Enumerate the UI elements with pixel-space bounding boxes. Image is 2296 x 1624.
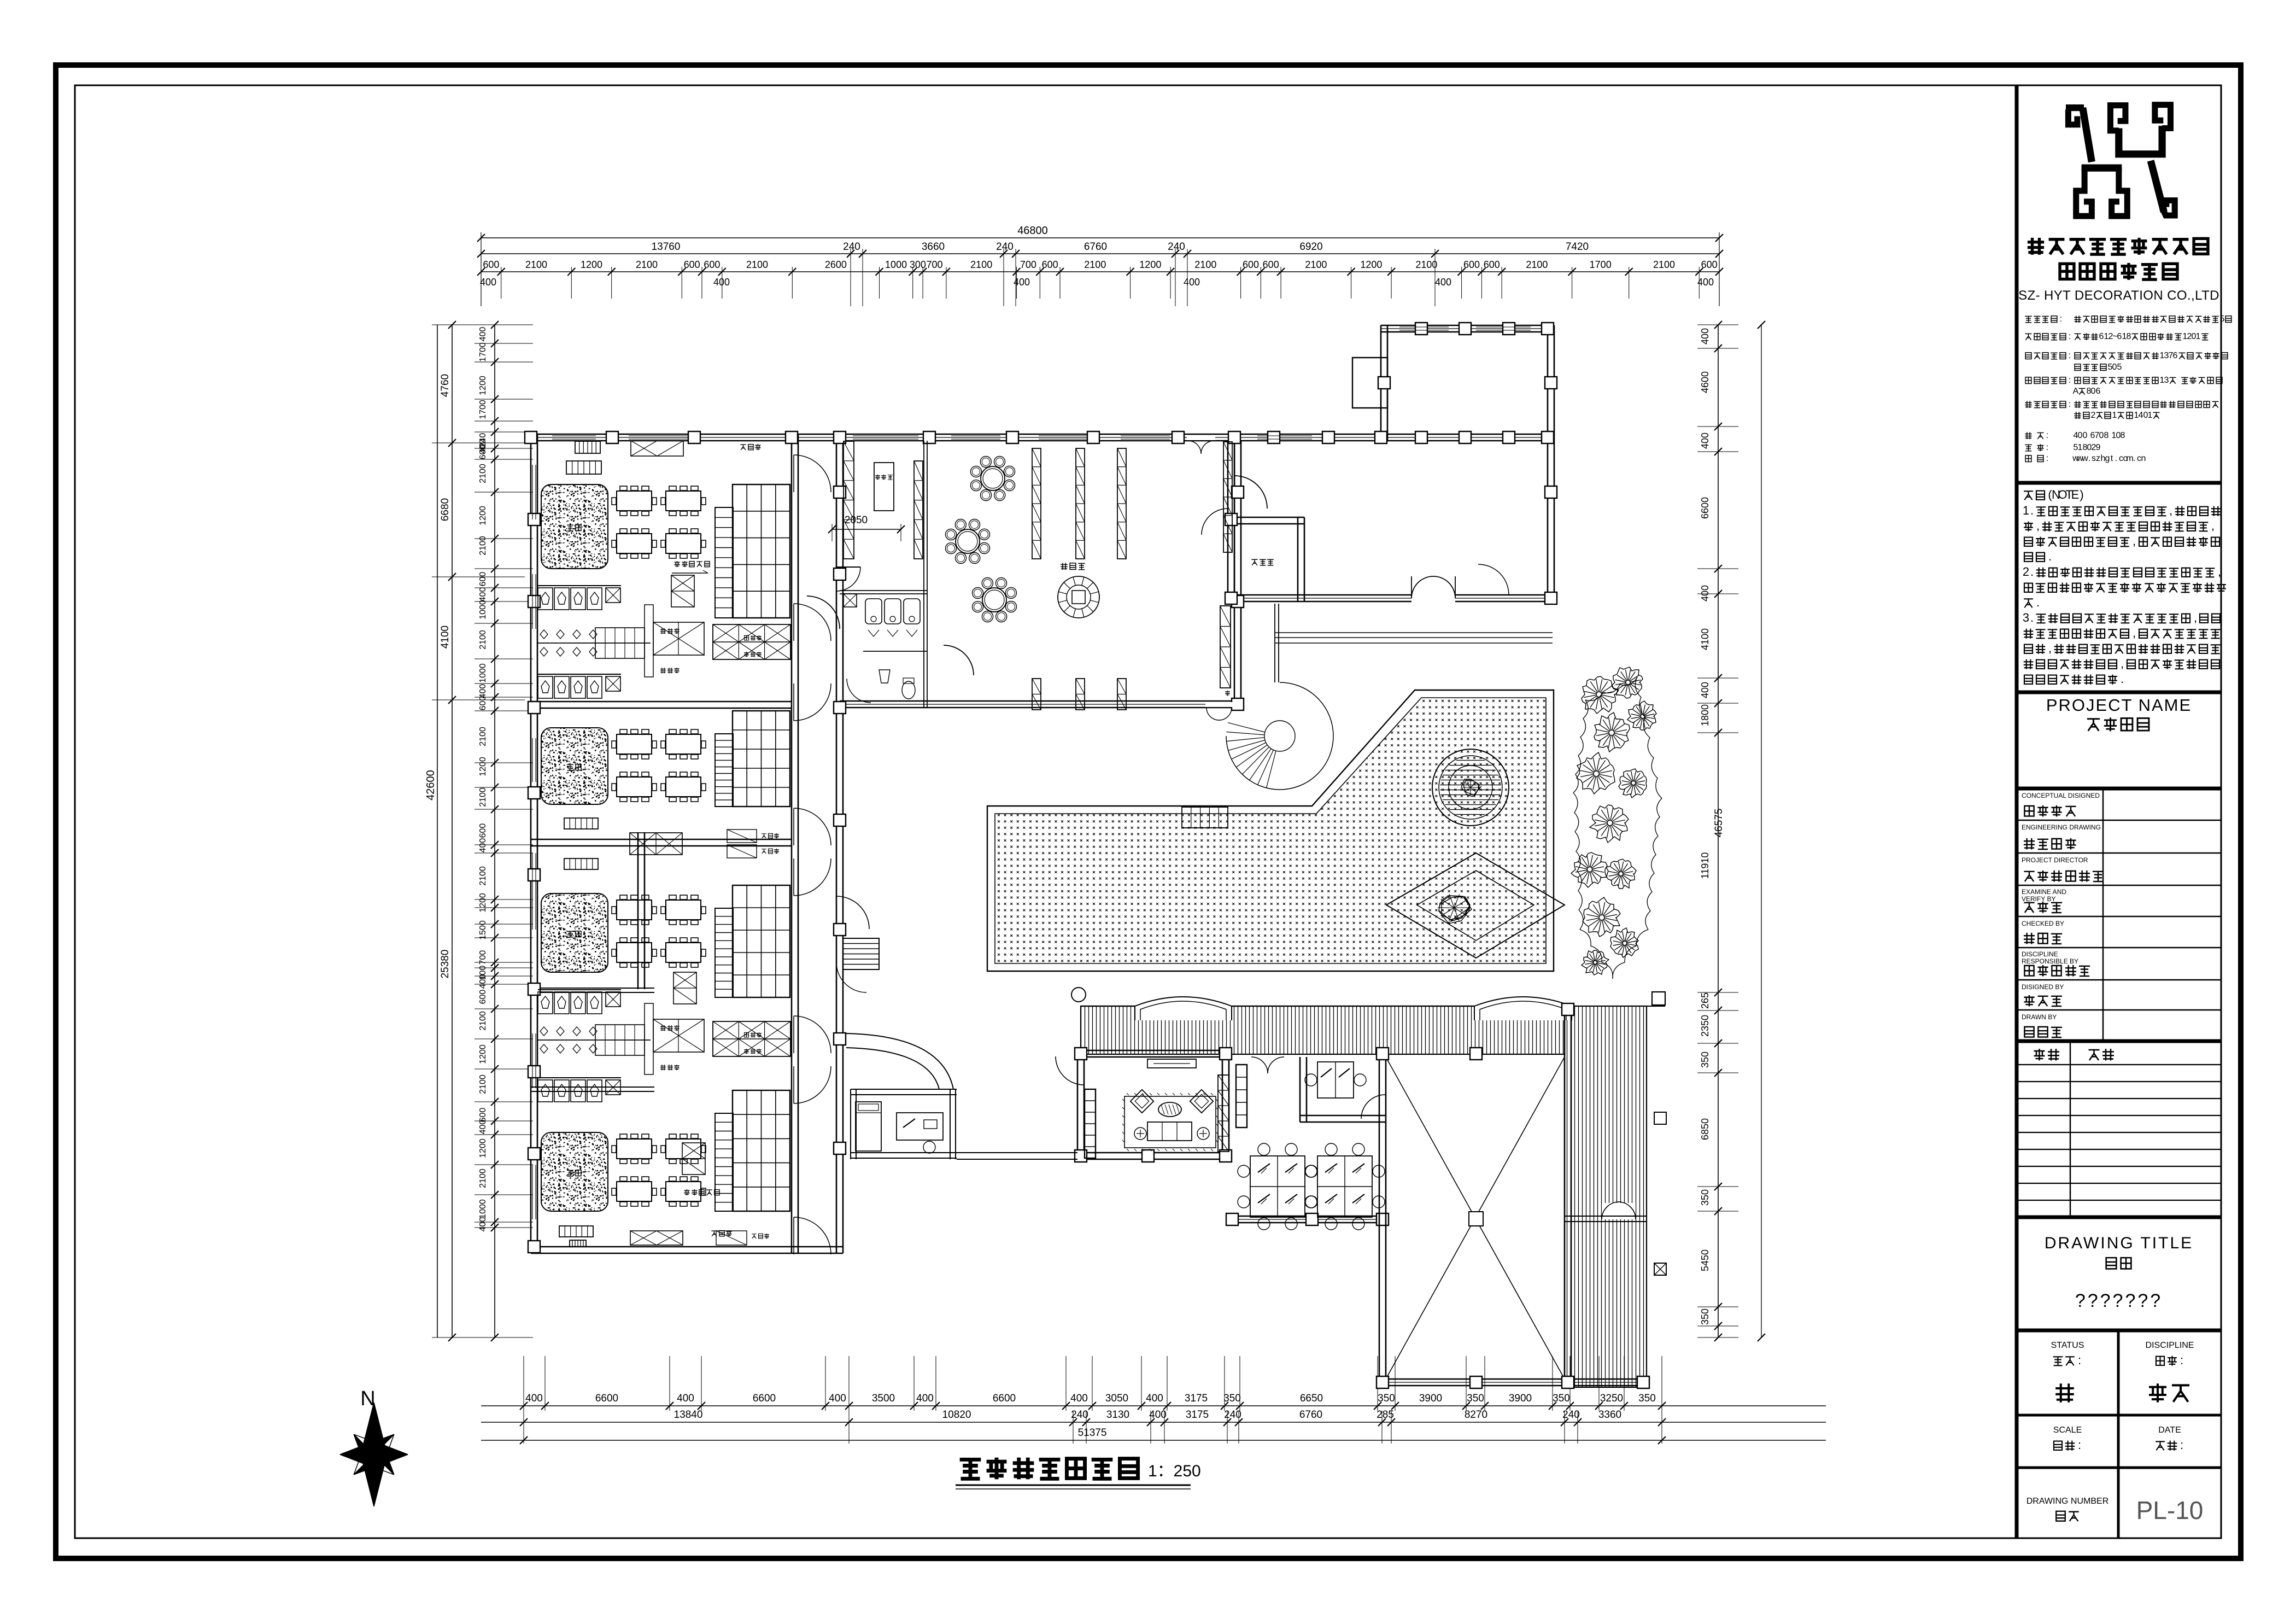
svg-text:3050: 3050 [1105, 1393, 1128, 1404]
svg-text:1200: 1200 [478, 376, 488, 395]
svg-text:3500: 3500 [872, 1393, 895, 1404]
svg-text::: : [2078, 1353, 2081, 1367]
svg-text:1700: 1700 [1590, 259, 1612, 270]
svg-text:1800: 1800 [1700, 704, 1711, 726]
svg-text:2100: 2100 [525, 259, 547, 270]
svg-text:600: 600 [1701, 259, 1718, 270]
svg-text:3360: 3360 [1598, 1409, 1621, 1421]
svg-text:1: 1 [2078, 443, 2083, 452]
svg-text:n: n [2141, 454, 2146, 463]
svg-text:600: 600 [483, 259, 499, 270]
svg-text:350: 350 [1223, 1393, 1241, 1404]
svg-text:SZ- HYT DECORATION CO.,LTD: SZ- HYT DECORATION CO.,LTD [2018, 288, 2219, 303]
svg-text:6850: 6850 [1700, 1118, 1711, 1140]
svg-text:2100: 2100 [478, 536, 488, 556]
svg-text:,: , [2036, 519, 2040, 533]
svg-text:2100: 2100 [478, 787, 488, 807]
svg-text:6600: 6600 [753, 1393, 776, 1404]
svg-text:8: 8 [2121, 431, 2125, 440]
svg-text:240: 240 [996, 241, 1014, 253]
svg-text:400: 400 [1700, 328, 1711, 344]
svg-text:4760: 4760 [440, 374, 451, 397]
svg-text:0: 0 [2099, 431, 2104, 440]
svg-text:400: 400 [1700, 585, 1711, 601]
svg-text:25380: 25380 [440, 950, 451, 979]
svg-text:400: 400 [1149, 1409, 1167, 1421]
svg-text:600: 600 [1463, 259, 1480, 270]
svg-text:2100: 2100 [478, 1011, 488, 1031]
svg-text:E: E [2071, 488, 2080, 501]
svg-text:1000: 1000 [885, 259, 907, 270]
svg-text:1200: 1200 [581, 259, 602, 270]
svg-text:1200: 1200 [478, 893, 488, 913]
svg-text:DISCIPLINE: DISCIPLINE [2022, 950, 2058, 958]
svg-text:8: 8 [2127, 332, 2131, 341]
svg-text:.: . [2030, 611, 2034, 624]
svg-text:400: 400 [713, 277, 730, 288]
svg-text:400: 400 [478, 838, 488, 853]
svg-text:.: . [2115, 454, 2117, 463]
svg-text:1000: 1000 [478, 600, 488, 620]
svg-text:0: 0 [2078, 431, 2083, 440]
svg-text:DRAWING TITLE: DRAWING TITLE [2045, 1234, 2193, 1252]
svg-text:3900: 3900 [1509, 1393, 1532, 1404]
svg-text:1700: 1700 [478, 342, 488, 362]
svg-text:DRAWN BY: DRAWN BY [2022, 1013, 2057, 1021]
svg-text:600: 600 [1042, 259, 1058, 270]
svg-text:SCALE: SCALE [2053, 1426, 2082, 1435]
svg-text:350: 350 [1700, 1308, 1711, 1325]
svg-text:600: 600 [684, 259, 700, 270]
svg-text:400: 400 [525, 1393, 543, 1404]
svg-text:2350: 2350 [1700, 1015, 1711, 1037]
svg-text:DISIGNED BY: DISIGNED BY [2022, 983, 2064, 991]
svg-text:DRAWING NUMBER: DRAWING NUMBER [2026, 1497, 2109, 1506]
svg-text::: : [2078, 1438, 2081, 1452]
svg-text:A: A [2073, 387, 2079, 396]
svg-text:4: 4 [2139, 411, 2143, 420]
svg-text:2100: 2100 [478, 727, 488, 746]
svg-text:600: 600 [1484, 259, 1500, 270]
svg-text:600: 600 [1243, 259, 1259, 270]
svg-text:400: 400 [1014, 277, 1030, 288]
svg-text:0: 0 [2112, 363, 2117, 372]
svg-text:400: 400 [478, 1120, 488, 1135]
svg-text:2100: 2100 [970, 259, 992, 270]
svg-text:350: 350 [1700, 1051, 1711, 1068]
svg-text:10820: 10820 [942, 1409, 971, 1421]
svg-text:2100: 2100 [478, 1169, 488, 1188]
svg-text:g: g [2105, 454, 2110, 463]
svg-text:1000: 1000 [478, 1199, 488, 1219]
svg-text::: : [2069, 400, 2071, 409]
svg-text:0: 0 [2091, 387, 2096, 396]
svg-text:400: 400 [478, 327, 488, 342]
svg-text:): ) [2080, 488, 2083, 501]
svg-text:t: t [2111, 454, 2113, 463]
svg-text:1200: 1200 [1139, 259, 1161, 270]
svg-text:300: 300 [910, 259, 926, 270]
svg-text:2: 2 [2091, 411, 2096, 420]
svg-text:3660: 3660 [922, 241, 945, 253]
svg-text:.: . [2088, 454, 2090, 463]
svg-text:3250: 3250 [1600, 1393, 1623, 1404]
svg-text:400: 400 [1435, 277, 1451, 288]
svg-text:2: 2 [2023, 565, 2029, 579]
svg-text:2100: 2100 [478, 1074, 488, 1094]
svg-text:8270: 8270 [1465, 1409, 1487, 1421]
svg-text:13760: 13760 [652, 241, 681, 253]
svg-text:.: . [2133, 454, 2135, 463]
svg-text:8: 8 [2104, 431, 2109, 440]
svg-text:3175: 3175 [1185, 1393, 1208, 1404]
svg-text:600: 600 [478, 823, 488, 838]
svg-text:240: 240 [1168, 241, 1185, 253]
svg-text:6: 6 [2096, 387, 2101, 396]
svg-text:PL-10: PL-10 [2136, 1496, 2204, 1524]
svg-text:CHECKED BY: CHECKED BY [2022, 920, 2064, 927]
svg-text::: : [2046, 454, 2048, 463]
svg-text:.: . [2030, 565, 2034, 579]
svg-text:46575: 46575 [1713, 809, 1725, 838]
svg-text::: : [2069, 332, 2071, 341]
svg-text:400: 400 [480, 277, 496, 288]
svg-text:6600: 6600 [1700, 497, 1711, 519]
svg-text:400: 400 [916, 1393, 934, 1404]
svg-text:2100: 2100 [478, 866, 488, 886]
svg-text:,: , [2218, 565, 2221, 579]
svg-text:6760: 6760 [1084, 241, 1107, 253]
svg-text:PROJECT NAME: PROJECT NAME [2046, 696, 2192, 715]
svg-text:400: 400 [478, 1217, 488, 1232]
svg-text:1000: 1000 [478, 663, 488, 683]
svg-text::: : [2060, 314, 2062, 324]
svg-text:.: . [2030, 504, 2034, 517]
svg-text:600: 600 [704, 259, 720, 270]
svg-text:2100: 2100 [478, 630, 488, 650]
svg-text:.: . [2036, 595, 2040, 609]
svg-text::: : [2069, 351, 2071, 360]
svg-text:9: 9 [2096, 443, 2101, 452]
svg-text:w: w [2081, 454, 2088, 463]
svg-text:2100: 2100 [746, 259, 768, 270]
svg-text:2600: 2600 [825, 259, 847, 270]
svg-text:4600: 4600 [1700, 371, 1711, 393]
svg-text:.: . [2048, 550, 2052, 563]
svg-text:3: 3 [2164, 376, 2169, 385]
svg-text:2100: 2100 [1415, 259, 1437, 270]
svg-text:400: 400 [829, 1393, 846, 1404]
svg-text:240: 240 [843, 241, 860, 253]
svg-text:1200: 1200 [478, 757, 488, 776]
svg-text:0: 0 [2083, 431, 2088, 440]
svg-text:EXAMINE AND: EXAMINE AND [2022, 888, 2066, 896]
svg-text::: : [2069, 376, 2071, 385]
svg-text:CONCEPTUAL DISIGNED: CONCEPTUAL DISIGNED [2022, 792, 2100, 799]
svg-text:,: , [2211, 519, 2215, 533]
svg-text:6600: 6600 [993, 1393, 1016, 1404]
svg-text:1: 1 [2112, 411, 2117, 420]
svg-text:VERIFY BY: VERIFY BY [2022, 895, 2055, 903]
svg-text:ENGINEERING DRAWING: ENGINEERING DRAWING [2022, 823, 2101, 831]
svg-text:600: 600 [478, 696, 488, 711]
svg-text:???????: ??????? [2075, 1290, 2163, 1311]
svg-text:2100: 2100 [636, 259, 658, 270]
svg-text:700: 700 [926, 259, 942, 270]
svg-text:,: , [2133, 626, 2136, 640]
svg-text:400: 400 [677, 1393, 694, 1404]
svg-text:3: 3 [2023, 611, 2029, 624]
svg-text:1700: 1700 [478, 400, 488, 419]
svg-text:3130: 3130 [1106, 1409, 1129, 1421]
svg-text:,: , [2169, 504, 2172, 517]
svg-text:2100: 2100 [1305, 259, 1327, 270]
svg-text:6: 6 [2173, 351, 2178, 360]
svg-text:240: 240 [1071, 1409, 1088, 1421]
svg-text:2100: 2100 [478, 464, 488, 483]
svg-text:1：250: 1：250 [1148, 1462, 1201, 1480]
svg-text:400: 400 [478, 587, 488, 602]
svg-text:1200: 1200 [1360, 259, 1382, 270]
svg-text:6600: 6600 [595, 1393, 618, 1404]
svg-text:,: , [2048, 641, 2052, 655]
svg-text:400: 400 [1697, 277, 1714, 288]
svg-text:600: 600 [478, 572, 488, 587]
svg-text:600: 600 [1263, 259, 1279, 270]
svg-text:5: 5 [2220, 314, 2225, 324]
svg-text:350: 350 [1638, 1393, 1656, 1404]
svg-text:400: 400 [1070, 1393, 1088, 1404]
svg-text:2050: 2050 [845, 515, 868, 526]
svg-text:2100: 2100 [1194, 259, 1216, 270]
svg-text:DATE: DATE [2158, 1426, 2181, 1435]
svg-text:z: z [2096, 454, 2100, 463]
svg-text::: : [2180, 1438, 2183, 1452]
svg-text:.: . [2121, 672, 2124, 686]
svg-text:11910: 11910 [1700, 852, 1711, 879]
svg-text:700: 700 [1020, 259, 1036, 270]
svg-text:m: m [2126, 454, 2133, 463]
svg-text:6: 6 [2117, 332, 2122, 341]
svg-text:2100: 2100 [1526, 259, 1548, 270]
svg-text:s: s [2092, 454, 2096, 463]
svg-text:400: 400 [1700, 682, 1711, 698]
svg-text:,: , [2121, 657, 2124, 670]
svg-text:400: 400 [478, 439, 488, 454]
svg-text:2100: 2100 [1653, 259, 1675, 270]
svg-text:DISCIPLINE: DISCIPLINE [2146, 1341, 2194, 1350]
svg-text::: : [2046, 431, 2048, 440]
svg-text:350: 350 [1700, 1189, 1711, 1206]
svg-text:1: 1 [2148, 411, 2153, 420]
svg-text:265: 265 [1700, 992, 1711, 1009]
svg-text:7420: 7420 [1566, 241, 1589, 253]
svg-text:,: , [2133, 534, 2136, 548]
svg-text::: : [2046, 443, 2048, 452]
svg-text:STATUS: STATUS [2051, 1341, 2084, 1350]
svg-text:1: 1 [2023, 504, 2029, 517]
svg-text:400: 400 [478, 974, 488, 989]
svg-text:1200: 1200 [478, 1138, 488, 1158]
svg-text:42600: 42600 [425, 770, 437, 801]
svg-text:400: 400 [1184, 277, 1200, 288]
svg-text:,: , [2194, 611, 2197, 624]
svg-text:1500: 1500 [478, 920, 488, 940]
svg-text:6920: 6920 [1299, 241, 1322, 253]
svg-text:1200: 1200 [478, 1044, 488, 1064]
svg-text:2100: 2100 [1084, 259, 1106, 270]
svg-text:6760: 6760 [1299, 1409, 1322, 1421]
svg-text:4100: 4100 [1700, 628, 1711, 650]
svg-text:600: 600 [478, 990, 488, 1004]
svg-text:3175: 3175 [1186, 1409, 1209, 1421]
svg-text::: : [2180, 1353, 2183, 1367]
svg-text:1200: 1200 [478, 506, 488, 525]
svg-text:PROJECT DIRECTOR: PROJECT DIRECTOR [2022, 856, 2088, 864]
svg-text:46800: 46800 [1017, 225, 1048, 237]
svg-text:5450: 5450 [1700, 1249, 1711, 1271]
svg-text:51375: 51375 [1078, 1427, 1107, 1439]
svg-text:6: 6 [2099, 332, 2104, 341]
svg-text:6680: 6680 [440, 498, 451, 521]
svg-text:400: 400 [1700, 433, 1711, 449]
svg-text:240: 240 [1562, 1409, 1580, 1421]
svg-text:13840: 13840 [674, 1409, 703, 1421]
svg-text:5: 5 [2117, 363, 2122, 372]
svg-text:3900: 3900 [1419, 1393, 1442, 1404]
svg-text:6650: 6650 [1300, 1393, 1323, 1404]
svg-text:4100: 4100 [440, 626, 451, 649]
svg-text:RESPONSIBLE BY: RESPONSIBLE BY [2022, 957, 2078, 965]
svg-text:1: 1 [2196, 332, 2201, 341]
svg-text:400: 400 [1146, 1393, 1163, 1404]
